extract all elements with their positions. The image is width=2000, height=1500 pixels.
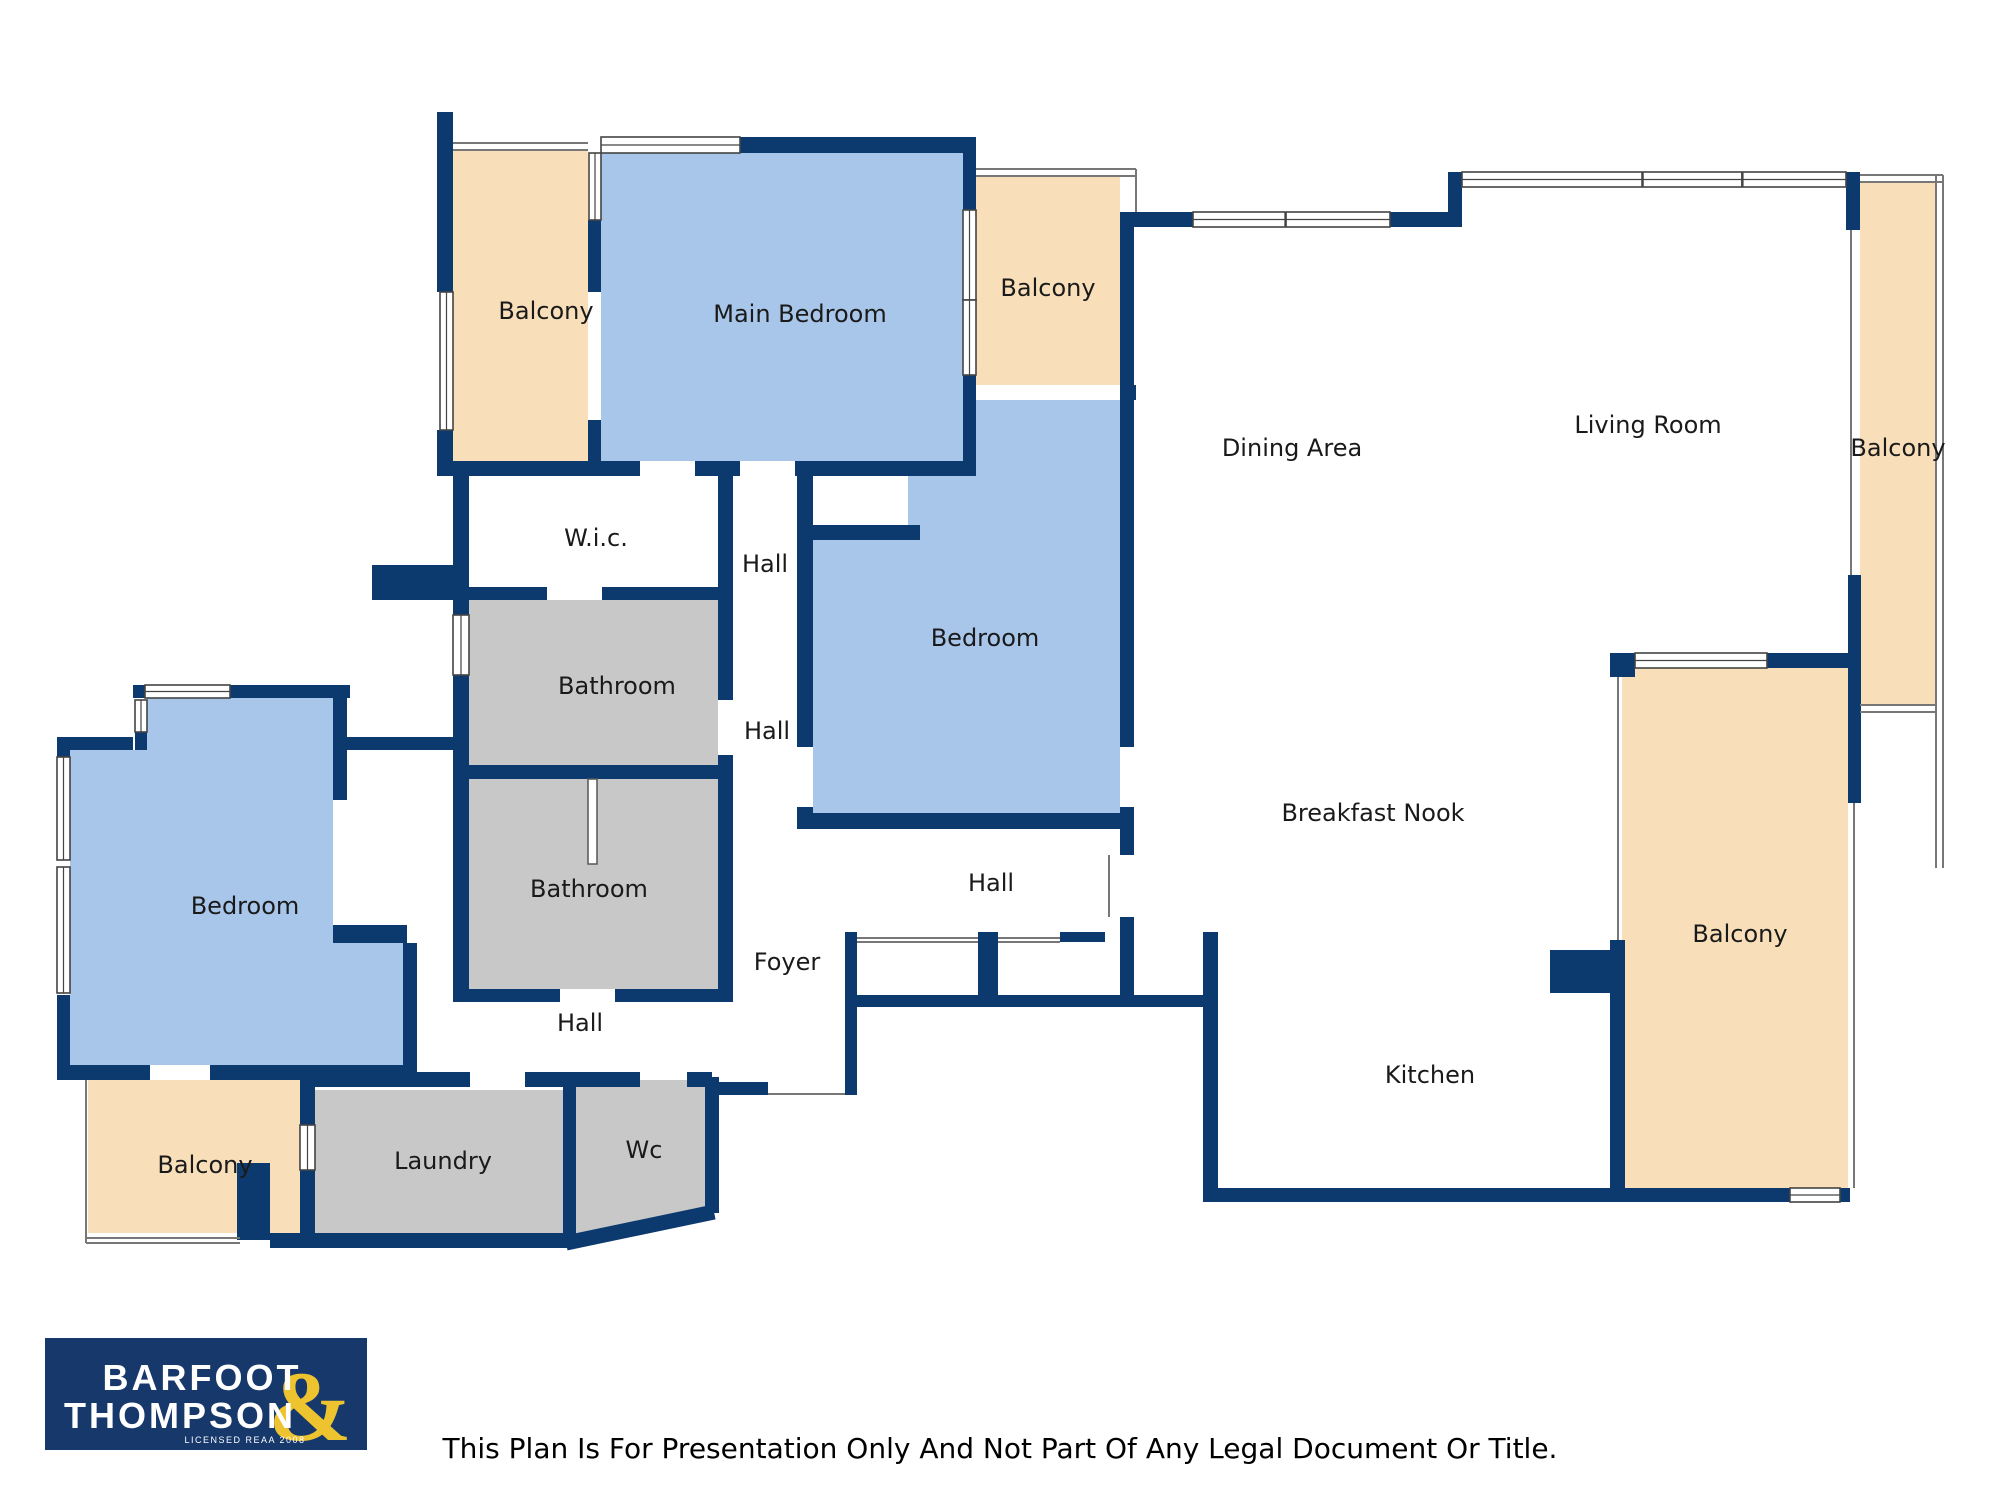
wall-segment xyxy=(453,600,469,615)
wall-segment xyxy=(963,137,976,210)
fill-bedroom-left xyxy=(333,943,403,1065)
wall-segment xyxy=(1848,575,1861,803)
agency-logo: & BARFOOT THOMPSON LICENSED REAA 2008 xyxy=(45,1338,367,1462)
wall-segment xyxy=(695,461,740,476)
fill-bedroom-middle-closet-nook xyxy=(813,476,908,525)
wall-segment xyxy=(1610,940,1625,1188)
wall-segment xyxy=(333,925,407,943)
wall-segment xyxy=(333,698,347,800)
label-kitchen: Kitchen xyxy=(1385,1061,1475,1089)
label-living-room: Living Room xyxy=(1574,411,1721,439)
wall-segment xyxy=(135,732,147,750)
wall-segment xyxy=(1448,172,1462,227)
wall-segment xyxy=(270,1233,563,1248)
wall-segment xyxy=(453,476,469,565)
label-bedroom-middle: Bedroom xyxy=(931,624,1040,652)
label-foyer: Foyer xyxy=(754,948,821,976)
wall-segment xyxy=(453,675,469,779)
wall-segment xyxy=(978,932,998,995)
wall-segment xyxy=(453,989,560,1002)
wall-segment xyxy=(718,587,733,700)
logo-line1: BARFOOT xyxy=(103,1357,302,1398)
wall-segment xyxy=(210,1065,417,1080)
label-bedroom-left: Bedroom xyxy=(191,892,300,920)
label-dining-area: Dining Area xyxy=(1222,434,1362,462)
wall-segment xyxy=(453,765,733,779)
logo-line2: THOMPSON xyxy=(64,1395,296,1436)
wall-segment xyxy=(797,813,1120,829)
wall-segment xyxy=(1846,172,1860,230)
wall-segment xyxy=(795,461,976,476)
wall-segment xyxy=(1203,932,1218,1202)
fill-bedroom-left xyxy=(147,698,333,750)
wall-segment xyxy=(845,995,1218,1007)
label-main-bedroom: Main Bedroom xyxy=(713,300,886,328)
wall-segment xyxy=(1550,950,1610,993)
wall-segment xyxy=(615,989,733,1002)
label-bathroom-lower: Bathroom xyxy=(530,875,648,903)
wall-segment xyxy=(57,737,70,757)
wall-segment xyxy=(718,476,733,587)
floor-plan-canvas: Balcony Main Bedroom Balcony Dining Area… xyxy=(0,0,2000,1500)
label-balcony-bottom-left: Balcony xyxy=(157,1151,252,1179)
wall-segment xyxy=(437,461,640,476)
logo-tagline: LICENSED REAA 2008 xyxy=(184,1435,305,1445)
label-balcony-top: Balcony xyxy=(1000,274,1095,302)
wall-segment xyxy=(133,685,145,698)
shower-divider xyxy=(588,779,597,864)
label-wic: W.i.c. xyxy=(564,524,628,552)
wall-segment xyxy=(712,1082,768,1095)
label-hall-middle: Hall xyxy=(744,717,790,745)
wall-segment xyxy=(1060,932,1105,942)
wall-segment xyxy=(740,137,976,153)
wall-segment xyxy=(705,1077,719,1213)
wall-segment xyxy=(1120,807,1134,855)
label-balcony-bottom-right: Balcony xyxy=(1692,920,1787,948)
label-breakfast-nook: Breakfast Nook xyxy=(1281,799,1464,827)
wall-segment xyxy=(1203,1188,1625,1202)
wall-segment xyxy=(1625,1188,1790,1202)
wall-segment xyxy=(57,1065,150,1080)
wall-segment xyxy=(453,587,547,600)
wall-segment xyxy=(453,779,469,1002)
fill-bedroom-middle xyxy=(976,400,1120,476)
wall-segment xyxy=(1120,212,1134,747)
wall-segment xyxy=(797,461,813,747)
disclaimer-text: This Plan Is For Presentation Only And N… xyxy=(442,1432,1558,1465)
floor-plan-page: Balcony Main Bedroom Balcony Dining Area… xyxy=(0,0,2000,1500)
wall-segment xyxy=(845,932,857,1095)
label-hall-lower: Hall xyxy=(557,1009,603,1037)
wall-segment xyxy=(588,220,601,292)
label-balcony-top-left: Balcony xyxy=(498,297,593,325)
wall-segment xyxy=(347,737,453,750)
wall-segment xyxy=(403,943,417,1078)
label-laundry: Laundry xyxy=(394,1147,492,1175)
wall-segment xyxy=(588,420,601,476)
label-balcony-right: Balcony xyxy=(1850,434,1945,462)
wall-segment xyxy=(1840,1188,1850,1202)
label-bathroom-upper: Bathroom xyxy=(558,672,676,700)
label-hall-upper: Hall xyxy=(742,550,788,578)
wall-segment xyxy=(1610,653,1635,677)
wall-segment xyxy=(1767,653,1848,668)
wall-segment xyxy=(797,525,920,540)
wall-segment xyxy=(718,779,733,1002)
wall-segment xyxy=(963,375,976,476)
wall-segment xyxy=(1120,917,1134,995)
wall-segment xyxy=(525,1072,640,1087)
wall-segment xyxy=(230,685,350,698)
label-wc: Wc xyxy=(626,1136,663,1164)
label-hall-center: Hall xyxy=(968,869,1014,897)
wall-segment xyxy=(602,587,733,600)
wall-segment xyxy=(563,1072,576,1248)
wall-segment xyxy=(437,112,453,292)
